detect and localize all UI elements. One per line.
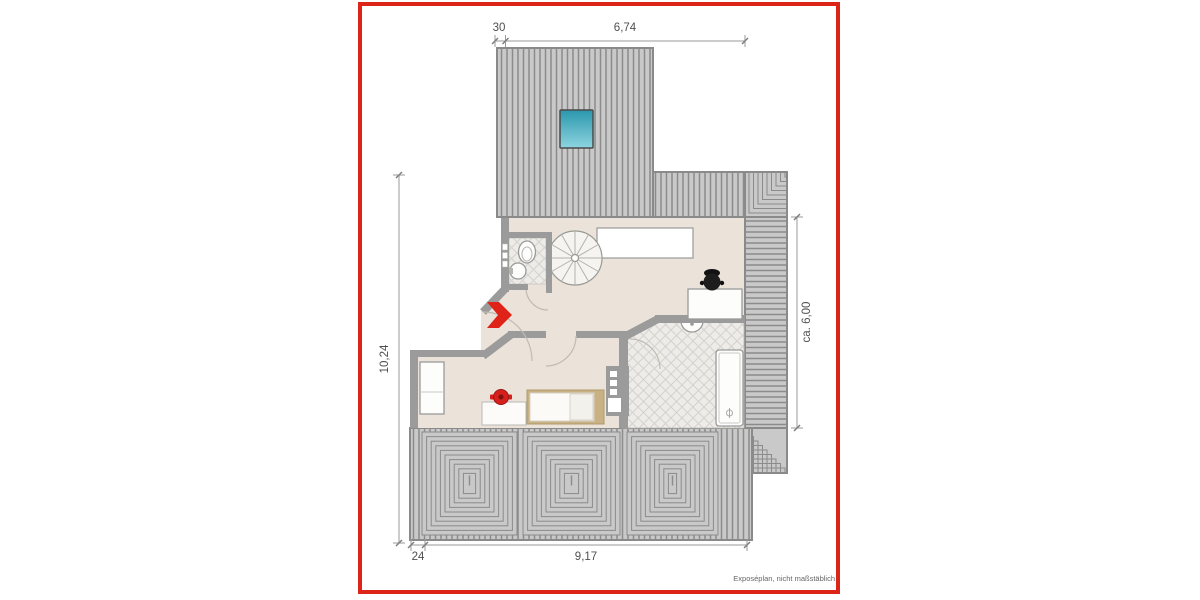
- bathtub-icon: [716, 350, 743, 426]
- exposeplan-page: 30 6,74 10,24 ca. 6,00 2: [0, 0, 1200, 600]
- installation-shaft: [606, 366, 629, 416]
- dimension-left: 10,24: [379, 172, 405, 546]
- dim-label-24: 24: [412, 551, 425, 563]
- dimension-top: 30 6,74: [492, 22, 748, 47]
- dimension-right: ca. 6,00: [791, 214, 813, 431]
- dim-label-674: 6,74: [614, 22, 637, 34]
- bed-icon: [527, 390, 604, 424]
- dormer-roofs: [422, 432, 718, 535]
- wc-room: [509, 238, 546, 284]
- dim-label-30: 30: [493, 22, 506, 34]
- dimension-bottom: 24 9,17: [408, 539, 750, 563]
- gallery-void-opening: [597, 228, 693, 258]
- dim-label-1024: 10,24: [379, 344, 391, 373]
- dim-label-917: 9,17: [575, 551, 597, 563]
- desk: [688, 289, 742, 319]
- roof-bottom-strip: [410, 428, 752, 540]
- skylight-icon: [560, 110, 593, 148]
- roof-corner-top: [745, 172, 787, 217]
- toilet-icon: [519, 241, 536, 263]
- dim-label-ca600: ca. 6,00: [801, 302, 813, 343]
- kitchen-table: [482, 402, 526, 425]
- wardrobe-icon: [420, 362, 444, 414]
- spiral-stair-icon: [548, 231, 602, 285]
- roof-right-band: [745, 217, 787, 428]
- wc-sink-icon: [509, 263, 526, 279]
- floor-plan-canvas: 30 6,74 10,24 ca. 6,00 2: [0, 0, 1200, 600]
- roof-right-extension: [653, 172, 745, 217]
- footer-note: Exposéplan, nicht maßstäblich: [733, 574, 835, 583]
